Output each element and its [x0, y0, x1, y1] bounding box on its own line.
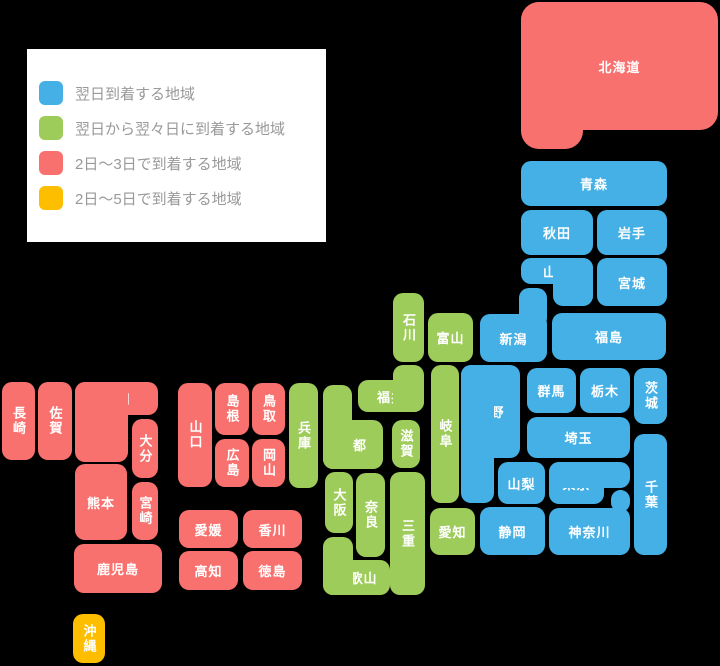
- prefecture-tochigi: 栃木: [580, 368, 630, 413]
- legend: 翌日到着する地域 翌日から翌々日に到着する地域 2日〜3日で到着する地域 2日〜…: [27, 49, 326, 242]
- prefecture-hyogo: 兵庫: [289, 383, 318, 488]
- prefecture-toyama: 富山: [428, 313, 473, 362]
- prefecture-nara: 奈良: [356, 473, 385, 557]
- prefecture-kanagawa: 神奈川: [549, 508, 630, 555]
- prefecture-mie: 三重: [390, 472, 425, 595]
- prefecture-aomori: 青森: [521, 161, 667, 206]
- prefecture-label-gunma: 群馬: [527, 368, 576, 413]
- prefecture-label-kagawa: 香川: [243, 510, 302, 548]
- prefecture-kagoshima: 鹿児島: [74, 544, 162, 593]
- legend-label-next-day: 翌日到着する地域: [75, 83, 195, 104]
- legend-label-next-next-day: 翌日から翌々日に到着する地域: [75, 118, 285, 139]
- prefecture-label-kochi: 高知: [179, 551, 238, 590]
- prefecture-chiba: 千葉: [634, 434, 667, 555]
- prefecture-oita: 大分: [132, 419, 158, 478]
- legend-swatch-next-next-day: [39, 116, 63, 140]
- prefecture-ehime: 愛媛: [179, 510, 238, 548]
- prefecture-yamagata-part2: [553, 258, 593, 306]
- prefecture-wakayama-part2: [323, 537, 353, 595]
- prefecture-aichi: 愛知: [430, 508, 475, 555]
- prefecture-label-ishikawa: 石川: [393, 293, 424, 362]
- prefecture-label-aichi: 愛知: [430, 508, 475, 555]
- prefecture-label-saga: 佐賀: [38, 382, 72, 460]
- legend-label-two-three-days: 2日〜3日で到着する地域: [75, 153, 242, 174]
- prefecture-nagano-part2: [461, 365, 494, 503]
- prefecture-ishikawa: 石川: [393, 293, 424, 362]
- prefecture-fukuoka-part2: [75, 382, 128, 462]
- prefecture-shiga: 滋賀: [392, 420, 420, 468]
- prefecture-label-yamaguchi: 山口: [178, 383, 212, 487]
- prefecture-tokushima: 徳島: [243, 551, 302, 590]
- prefecture-label-miyazaki: 宮崎: [132, 482, 158, 540]
- prefecture-niigata-part2: [519, 288, 547, 328]
- prefecture-label-kumamoto: 熊本: [75, 464, 127, 540]
- prefecture-okinawa: 沖縄: [73, 614, 105, 663]
- prefecture-label-iwate: 岩手: [597, 210, 667, 255]
- japan-delivery-map: 翌日到着する地域 翌日から翌々日に到着する地域 2日〜3日で到着する地域 2日〜…: [0, 0, 720, 666]
- legend-swatch-next-day: [39, 81, 63, 105]
- prefecture-okayama: 岡山: [252, 439, 285, 487]
- legend-swatch-two-three-days: [39, 151, 63, 175]
- prefecture-label-okayama: 岡山: [252, 439, 285, 487]
- prefecture-label-saitama: 埼玉: [527, 417, 630, 458]
- prefecture-label-tottori: 鳥取: [252, 383, 285, 435]
- legend-item-next-next-day: 翌日から翌々日に到着する地域: [39, 116, 326, 140]
- prefecture-label-oita: 大分: [132, 419, 158, 478]
- prefecture-fukushima: 福島: [552, 313, 666, 360]
- prefecture-label-toyama: 富山: [428, 313, 473, 362]
- legend-item-two-five-days: 2日〜5日で到着する地域: [39, 186, 326, 210]
- prefecture-hokkaido-part2: [521, 2, 583, 149]
- prefecture-label-fukushima: 福島: [552, 313, 666, 360]
- prefecture-nagasaki: 長崎: [2, 382, 35, 460]
- prefecture-miyagi: 宮城: [597, 258, 667, 306]
- legend-item-two-three-days: 2日〜3日で到着する地域: [39, 151, 326, 175]
- legend-swatch-two-five-days: [39, 186, 63, 210]
- prefecture-yamaguchi: 山口: [178, 383, 212, 487]
- prefecture-label-miyagi: 宮城: [597, 258, 667, 306]
- prefecture-label-ibaraki: 茨城: [634, 368, 667, 424]
- prefecture-ibaraki: 茨城: [634, 368, 667, 424]
- prefecture-label-okinawa: 沖縄: [73, 614, 105, 663]
- prefecture-shizuoka: 静岡: [480, 507, 545, 555]
- prefecture-gunma: 群馬: [527, 368, 576, 413]
- prefecture-label-hiroshima: 広島: [215, 439, 249, 487]
- prefecture-label-gifu: 岐阜: [431, 365, 459, 503]
- prefecture-saga: 佐賀: [38, 382, 72, 460]
- prefecture-kumamoto: 熊本: [75, 464, 127, 540]
- prefecture-iwate: 岩手: [597, 210, 667, 255]
- prefecture-label-kagoshima: 鹿児島: [74, 544, 162, 593]
- prefecture-kochi: 高知: [179, 551, 238, 590]
- prefecture-kyoto-part2: [323, 385, 352, 469]
- prefecture-label-kanagawa: 神奈川: [549, 508, 630, 555]
- prefecture-miyazaki: 宮崎: [132, 482, 158, 540]
- prefecture-label-nara: 奈良: [356, 473, 385, 557]
- prefecture-label-tokushima: 徳島: [243, 551, 302, 590]
- prefecture-label-yamanashi: 山梨: [498, 462, 545, 504]
- prefecture-label-aomori: 青森: [521, 161, 667, 206]
- legend-label-two-five-days: 2日〜5日で到着する地域: [75, 188, 242, 209]
- prefecture-shimane: 島根: [215, 383, 249, 435]
- prefecture-yamanashi: 山梨: [498, 462, 545, 504]
- prefecture-hiroshima: 広島: [215, 439, 249, 487]
- prefecture-saitama: 埼玉: [527, 417, 630, 458]
- prefecture-kanagawa-part2: [611, 490, 630, 512]
- prefecture-label-mie: 三重: [390, 472, 425, 595]
- prefecture-label-nagasaki: 長崎: [2, 382, 35, 460]
- prefecture-label-shimane: 島根: [215, 383, 249, 435]
- prefecture-label-chiba: 千葉: [634, 434, 667, 555]
- prefecture-label-hyogo: 兵庫: [289, 383, 318, 488]
- prefecture-fukui-part2: [393, 365, 424, 412]
- prefecture-label-shizuoka: 静岡: [480, 507, 545, 555]
- prefecture-label-ehime: 愛媛: [179, 510, 238, 548]
- prefecture-osaka: 大阪: [325, 472, 353, 533]
- prefecture-label-tochigi: 栃木: [580, 368, 630, 413]
- prefecture-gifu: 岐阜: [431, 365, 459, 503]
- prefecture-label-akita: 秋田: [521, 210, 593, 255]
- prefecture-tokyo-part2: [549, 462, 630, 488]
- prefecture-akita: 秋田: [521, 210, 593, 255]
- legend-item-next-day: 翌日到着する地域: [39, 81, 326, 105]
- prefecture-label-osaka: 大阪: [325, 472, 353, 533]
- prefecture-kagawa: 香川: [243, 510, 302, 548]
- prefecture-label-shiga: 滋賀: [392, 420, 420, 468]
- prefecture-tottori: 鳥取: [252, 383, 285, 435]
